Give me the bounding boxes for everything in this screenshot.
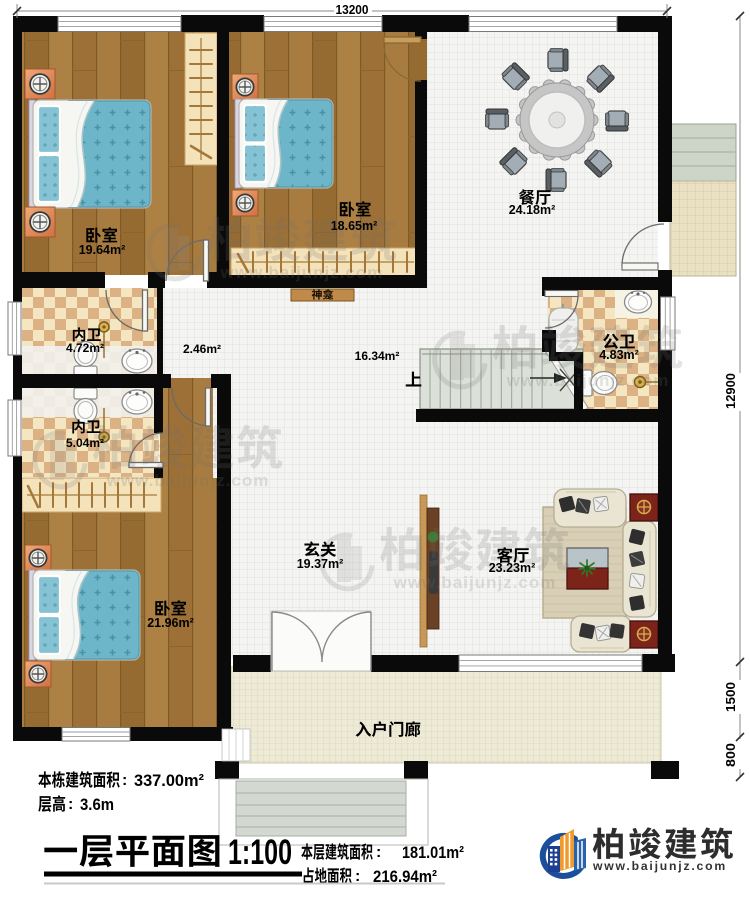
svg-text:1:100: 1:100 (228, 833, 292, 872)
svg-text::: : (355, 868, 360, 885)
svg-text::: : (122, 772, 127, 789)
svg-text:19.37m²: 19.37m² (297, 557, 344, 571)
svg-text:4.83m²: 4.83m² (599, 348, 639, 362)
svg-text:12900: 12900 (723, 373, 738, 409)
svg-text:337.00m²: 337.00m² (134, 772, 204, 790)
svg-text:2.46m²: 2.46m² (183, 342, 221, 356)
svg-text:181.01m²: 181.01m² (402, 844, 464, 862)
svg-text:www.baijunjz.com: www.baijunjz.com (106, 471, 270, 490)
svg-text:800: 800 (723, 743, 738, 767)
svg-text:13200: 13200 (336, 2, 369, 17)
svg-text::: : (376, 844, 381, 861)
svg-text:4.72m²: 4.72m² (66, 341, 104, 355)
svg-text:www.baijunjz.com: www.baijunjz.com (393, 573, 557, 592)
svg-text:24.18m²: 24.18m² (509, 203, 556, 217)
svg-text:5.04m²: 5.04m² (66, 436, 104, 450)
svg-text::: : (68, 796, 73, 813)
svg-text:18.65m²: 18.65m² (331, 219, 378, 233)
svg-text:1500: 1500 (723, 682, 738, 712)
svg-text:23.23m²: 23.23m² (489, 561, 536, 575)
svg-text:16.34m²: 16.34m² (355, 349, 400, 363)
svg-text:21.96m²: 21.96m² (147, 616, 194, 630)
svg-text:19.64m²: 19.64m² (79, 243, 126, 257)
svg-text:www.baijunjz.com: www.baijunjz.com (220, 263, 384, 282)
svg-text:www.baijunjz.com: www.baijunjz.com (592, 859, 727, 873)
svg-text:www.baijunjz.com: www.baijunjz.com (506, 371, 670, 390)
svg-text:3.6m: 3.6m (80, 796, 114, 814)
